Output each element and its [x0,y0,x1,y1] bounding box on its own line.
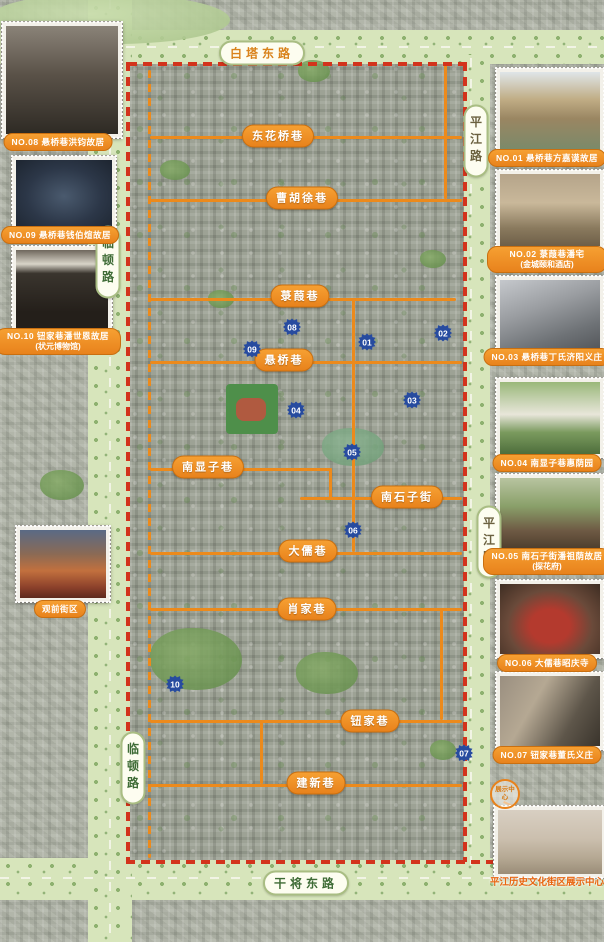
lane-label-nanxianzi: 南显子巷 [172,456,244,479]
road-label-lindun-lower: 临顿路 [121,732,146,805]
lane-label-jianxin: 建新巷 [287,772,346,795]
park-large [150,628,242,690]
caption-no06: NO.06 大儒巷昭庆寺 [497,654,597,672]
photo-dongshi-yizhuang [496,672,604,750]
caption-no10-line1: NO.10 钮家巷潘世恩故居 [7,331,109,341]
photo-hongjun-residence [2,22,122,138]
lane-line-v4 [260,720,263,784]
photo-qianboxuan-residence [12,156,116,230]
lane-line-connector [329,468,332,498]
caption-no07: NO.07 钮家巷董氏义庄 [493,746,602,764]
running-track [236,398,266,421]
trees-7 [430,740,456,760]
trees-3 [420,250,446,268]
photo-guanqian-street [16,526,110,602]
photo-exhibition-center [494,806,604,878]
road-label-pingjiang-upper: 平江路 [464,105,489,178]
trees-5 [40,470,84,500]
boundary-right [463,62,467,862]
exhibition-center-map-marker: 展示中心 [490,779,520,809]
caption-no04: NO.04 南显子巷惠荫园 [493,454,602,472]
lane-line-west [148,70,151,858]
lane-line-niujia [150,720,462,723]
photo-huiyin-garden [496,378,604,458]
caption-no01: NO.01 悬桥巷方嘉谟故居 [488,149,604,167]
photo-panzuyin-residence [496,474,604,552]
caption-no10-line2: (状元博物馆) [3,342,113,352]
pingjiang-district-map: 白塔东路 干将东路 平江路 平江路 临顿路 临顿路 东花桥巷 曹胡徐巷 菉葭巷 … [0,0,604,942]
caption-no02: NO.02 菉葭巷潘宅 (金城颐和酒店) [487,246,604,273]
road-label-baita-east: 白塔东路 [219,41,305,66]
photo-zhaoqing-temple [496,580,604,658]
lane-label-donghuaqiao: 东花桥巷 [242,125,314,148]
lane-line-v1 [444,64,447,199]
lane-label-xiaojia: 肖家巷 [278,598,337,621]
caption-no02-line2: (金城颐和酒店) [495,260,599,270]
road-label-ganjiang-east: 干将东路 [263,871,349,896]
lane-label-daru: 大儒巷 [279,540,338,563]
lane-label-niujia: 钮家巷 [341,710,400,733]
photo-fangjiamo-residence [496,68,604,154]
caption-no03: NO.03 悬桥巷丁氏济阳义庄 [484,348,604,366]
lane-label-xuanqiao: 悬桥巷 [255,349,314,372]
caption-no02-line1: NO.02 菉葭巷潘宅 [510,249,585,259]
caption-no10: NO.10 钮家巷潘世恩故居 (状元博物馆) [0,328,121,355]
lane-label-caohuxu: 曹胡徐巷 [266,187,338,210]
caption-no05: NO.05 南石子街潘祖荫故居 (探花府) [483,548,604,575]
lane-label-nanshizi: 南石子街 [371,486,443,509]
caption-guanqian: 观前街区 [34,600,86,618]
lane-line-v3 [440,608,443,720]
lane-line-v2 [352,298,355,552]
caption-no05-line1: NO.05 南石子街潘祖荫故居 [492,551,603,561]
lane-label-lujia: 菉葭巷 [271,285,330,308]
caption-no09: NO.09 悬桥巷钱伯煊故居 [1,226,119,244]
photo-dingshi-yizhuang [496,276,604,352]
caption-exhibition-center: 平江历史文化街区展示中心 [490,874,604,888]
caption-no05-line2: (探花府) [491,562,603,572]
caption-no08: NO.08 悬桥巷洪钧故居 [4,133,113,151]
photo-panzhai-hotel [496,170,604,250]
trees-6 [296,652,358,694]
trees-2 [160,160,190,180]
